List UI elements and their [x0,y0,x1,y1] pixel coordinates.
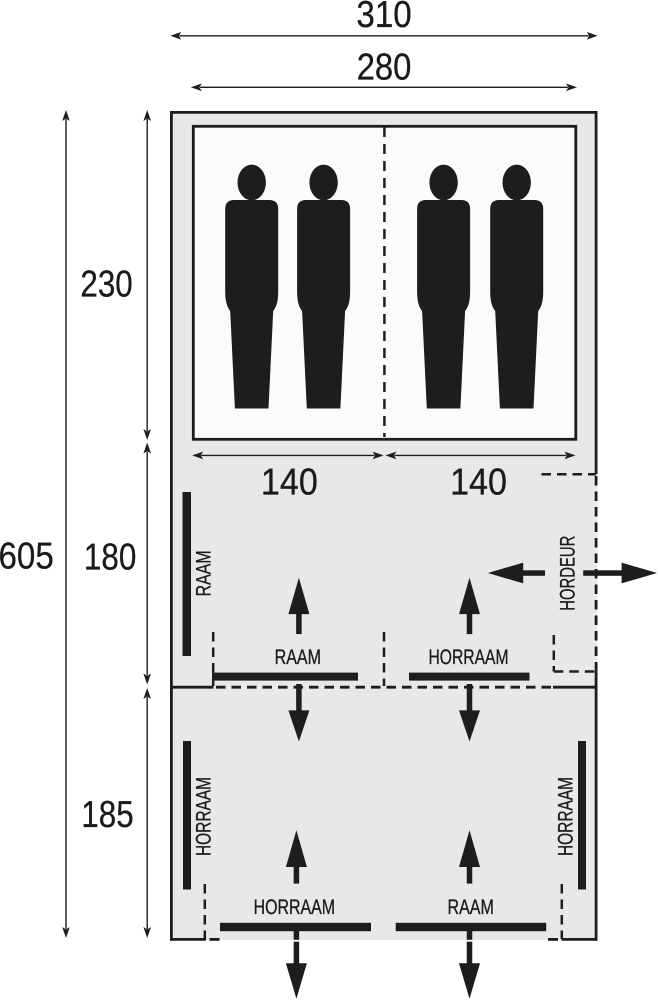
svg-text:RAAM: RAAM [448,896,494,919]
svg-text:HORRAAM: HORRAAM [555,777,578,856]
svg-text:HORRAAM: HORRAAM [429,646,509,669]
svg-text:HORDEUR: HORDEUR [557,536,580,611]
svg-text:HORRAAM: HORRAAM [254,896,336,919]
svg-text:HORRAAM: HORRAAM [193,777,216,856]
svg-text:RAAM: RAAM [192,550,215,596]
svg-text:180: 180 [84,535,136,577]
svg-text:310: 310 [356,0,411,35]
svg-text:230: 230 [80,262,132,304]
svg-text:RAAM: RAAM [275,646,321,669]
svg-text:185: 185 [81,793,133,835]
svg-text:140: 140 [450,461,507,503]
svg-text:280: 280 [357,45,412,87]
svg-text:605: 605 [0,535,54,577]
svg-text:140: 140 [261,461,318,503]
